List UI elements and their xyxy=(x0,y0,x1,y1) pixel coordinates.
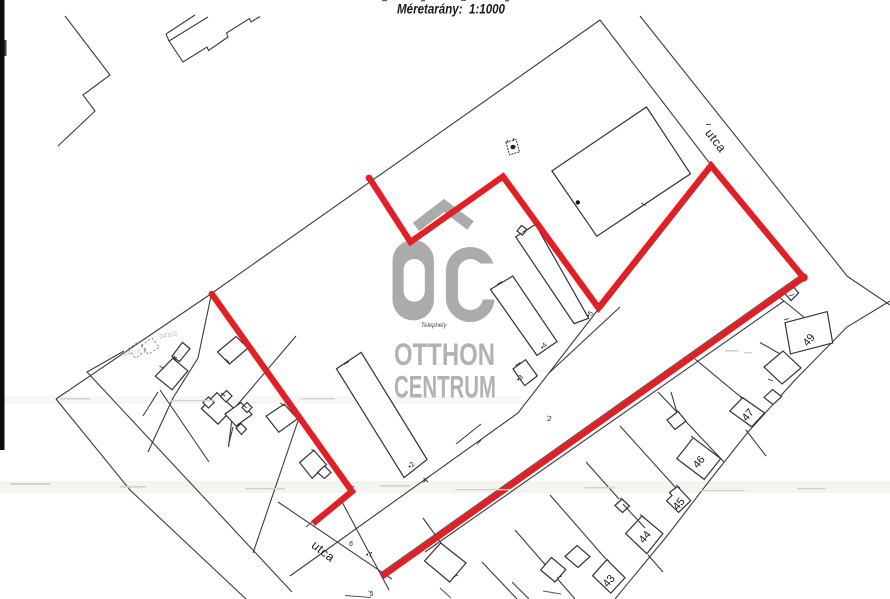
svg-text:•7: •7 xyxy=(366,552,372,559)
svg-text:ʼ2: ʼ2 xyxy=(546,415,552,423)
svg-text:OTTHON: OTTHON xyxy=(394,336,495,372)
svg-text:Méretarány: 1:1000: Méretarány: 1:1000 xyxy=(397,2,505,17)
svg-text:6: 6 xyxy=(349,541,353,548)
svg-text:Telephely: Telephely xyxy=(421,323,447,329)
svg-text:ʻ5: ʻ5 xyxy=(368,590,374,598)
svg-text:CENTRUM: CENTRUM xyxy=(394,369,496,405)
